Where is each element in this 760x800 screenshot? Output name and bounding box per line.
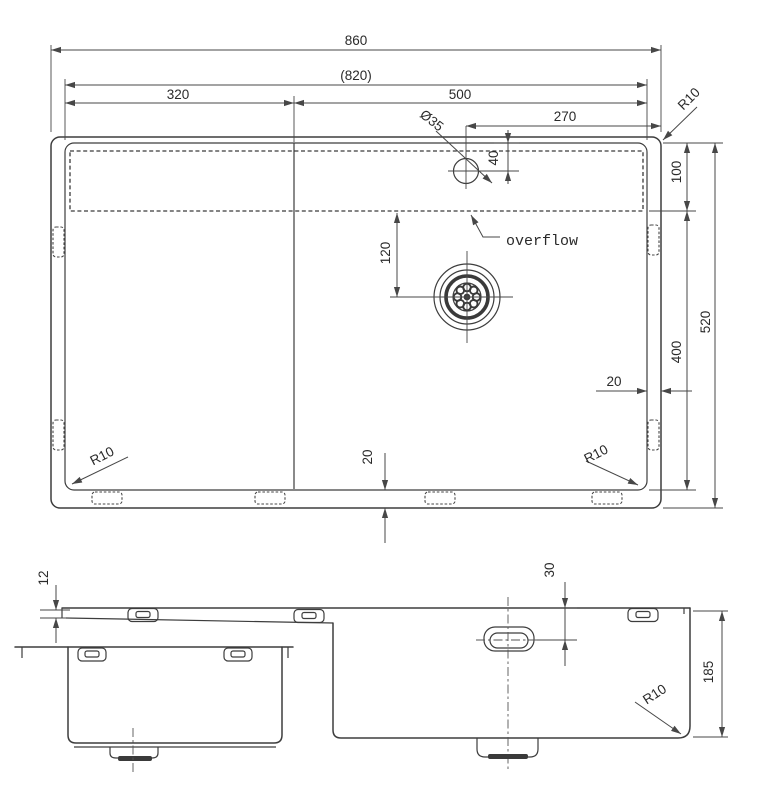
dim-faucet-hole-diameter: Ø35: [417, 107, 446, 135]
dim-rim-gap-right: 20: [606, 374, 621, 389]
dim-drain-offset-right: 270: [554, 109, 577, 124]
dim-bowl-width: 500: [449, 87, 472, 102]
dim-overall-depth: 520: [698, 311, 713, 334]
side-mounting-clips: [78, 648, 252, 661]
dim-deck-depth: 100: [669, 161, 684, 184]
plan-view: 860 (820) 320 500 270 R10 Ø35 40 100 400…: [51, 33, 723, 543]
plan-inner-rim: [65, 143, 647, 490]
plan-mounting-clips: [53, 225, 659, 504]
drain-strainer: [421, 251, 513, 343]
sink-technical-drawing: 860 (820) 320 500 270 R10 Ø35 40 100 400…: [0, 0, 760, 800]
plan-extension-lines: [51, 45, 723, 508]
dim-bowl-length: 400: [669, 341, 684, 364]
dim-left-section: 320: [167, 87, 190, 102]
front-view: 12 30 185 R10: [36, 562, 728, 770]
plan-dimension-texts: 860 (820) 320 500 270 R10 Ø35 40 100 400…: [88, 33, 713, 468]
dim-faucet-hole-offset: 40: [486, 150, 501, 165]
plan-dimension-lines: [51, 50, 715, 543]
plan-outer-rim: [51, 137, 661, 508]
front-drain-stub: [477, 738, 538, 759]
dim-front-corner-radius: R10: [640, 681, 669, 707]
drawing-canvas: 860 (820) 320 500 270 R10 Ø35 40 100 400…: [0, 0, 760, 800]
front-dimensions: 12 30 185 R10: [36, 562, 728, 737]
dim-drain-offset-deck: 120: [378, 242, 393, 265]
dim-bowl-depth: 185: [701, 661, 716, 684]
dim-inner-width: (820): [340, 68, 372, 83]
dim-rim-height: 12: [36, 570, 51, 585]
dim-rim-gap-bottom: 20: [360, 449, 375, 464]
front-drainboard-bottom: [66, 618, 333, 623]
plan-deck-dashed-outline: [70, 151, 643, 211]
side-view: [15, 647, 293, 772]
side-drain-stub: [110, 747, 158, 761]
dim-corner-radius-bottom-right: R10: [582, 442, 611, 467]
dim-overflow-offset: 30: [542, 562, 557, 577]
dim-overall-width: 860: [345, 33, 368, 48]
front-overflow-hole: [476, 627, 542, 651]
overflow-label: overflow: [506, 233, 578, 250]
dim-corner-radius-top-right: R10: [675, 85, 703, 113]
